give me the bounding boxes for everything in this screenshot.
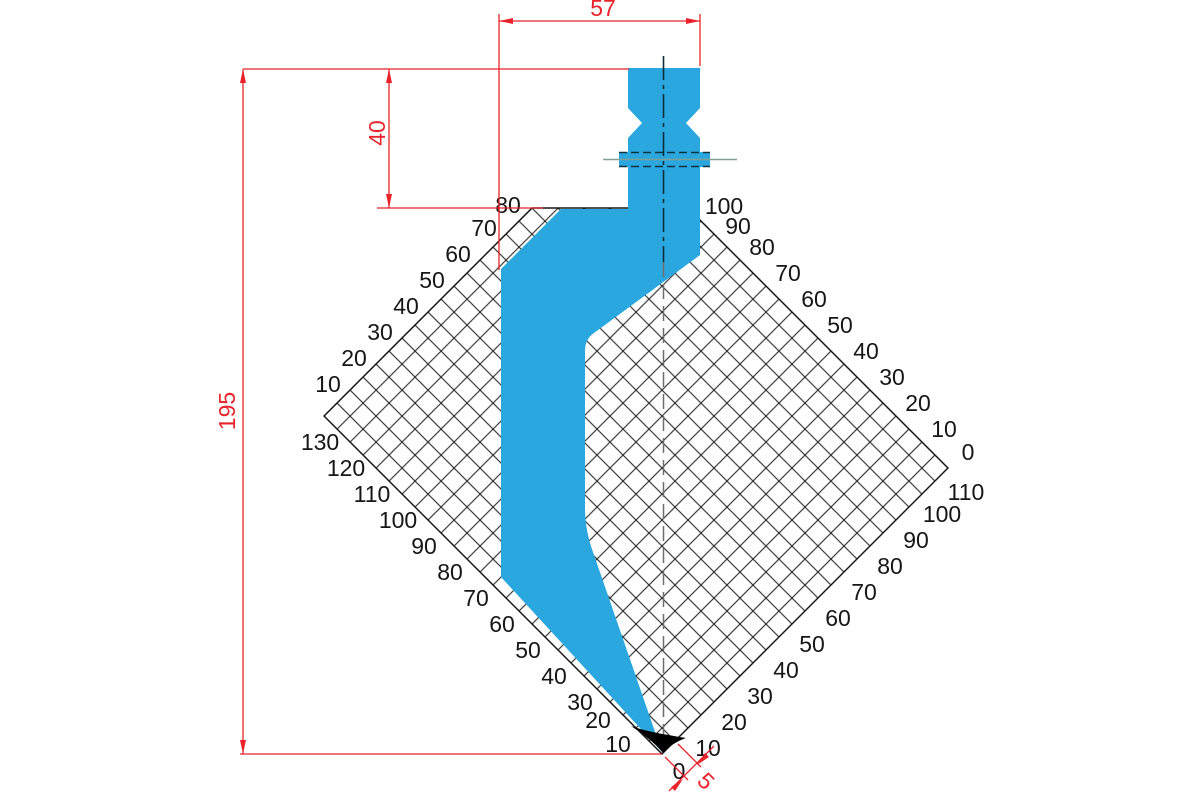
scale-label: 40 xyxy=(853,338,879,364)
scale-label: 100 xyxy=(379,507,417,533)
scale-label: 20 xyxy=(905,390,931,416)
scale-label: 60 xyxy=(801,286,827,312)
scale-label: 130 xyxy=(301,429,339,455)
scale-label: 110 xyxy=(948,479,985,505)
drawing-canvas: 10 20 30 40 50 60 70 80 10 20 30 40 50 6… xyxy=(0,0,1200,800)
scale-label: 100 xyxy=(705,193,743,219)
technical-drawing: 10 20 30 40 50 60 70 80 10 20 30 40 50 6… xyxy=(0,0,1200,800)
scale-label: 30 xyxy=(367,319,393,345)
scale-label: 50 xyxy=(799,631,825,657)
scale-label: 80 xyxy=(437,559,463,585)
scale-label: 70 xyxy=(471,215,497,241)
scale-label: 60 xyxy=(489,611,515,637)
scale-label: 110 xyxy=(354,481,391,507)
scale-label: 90 xyxy=(903,527,929,553)
scale-label: 20 xyxy=(341,345,367,371)
scale-label: 10 xyxy=(315,371,341,397)
scale-label: 40 xyxy=(773,657,799,683)
scale-label: 70 xyxy=(775,260,801,286)
dim-57-label: 57 xyxy=(590,0,616,21)
dim-195-label: 195 xyxy=(214,392,240,430)
arrow-40-bottom xyxy=(386,194,392,208)
arrow-195-top xyxy=(240,69,246,83)
scale-label: 30 xyxy=(879,364,905,390)
scale-label: 70 xyxy=(463,585,489,611)
scale-label: 30 xyxy=(567,689,593,715)
scale-label: 30 xyxy=(747,683,773,709)
scale-label: 40 xyxy=(393,293,419,319)
scale-label: 90 xyxy=(411,533,437,559)
scale-label: 80 xyxy=(877,553,903,579)
scale-label: 0 xyxy=(962,439,975,465)
scale-label: 10 xyxy=(931,416,957,442)
scale-label: 80 xyxy=(749,234,775,260)
arrow-57-right xyxy=(686,18,700,24)
scale-label: 50 xyxy=(515,637,541,663)
arrow-195-bottom xyxy=(240,740,246,754)
scale-label: 70 xyxy=(851,579,877,605)
scale-label: 60 xyxy=(445,241,471,267)
dim-40-label: 40 xyxy=(364,120,390,146)
scale-label: 50 xyxy=(827,312,853,338)
arrow-40-top xyxy=(386,69,392,83)
scale-label: 60 xyxy=(825,605,851,631)
scale-label: 10 xyxy=(605,731,631,757)
scale-label: 40 xyxy=(541,663,567,689)
dim-5-label: 5 xyxy=(692,767,719,794)
scale-label: 50 xyxy=(419,267,445,293)
scale-label: 120 xyxy=(327,455,365,481)
scale-label: 20 xyxy=(721,709,747,735)
arrow-57-left xyxy=(499,18,513,24)
